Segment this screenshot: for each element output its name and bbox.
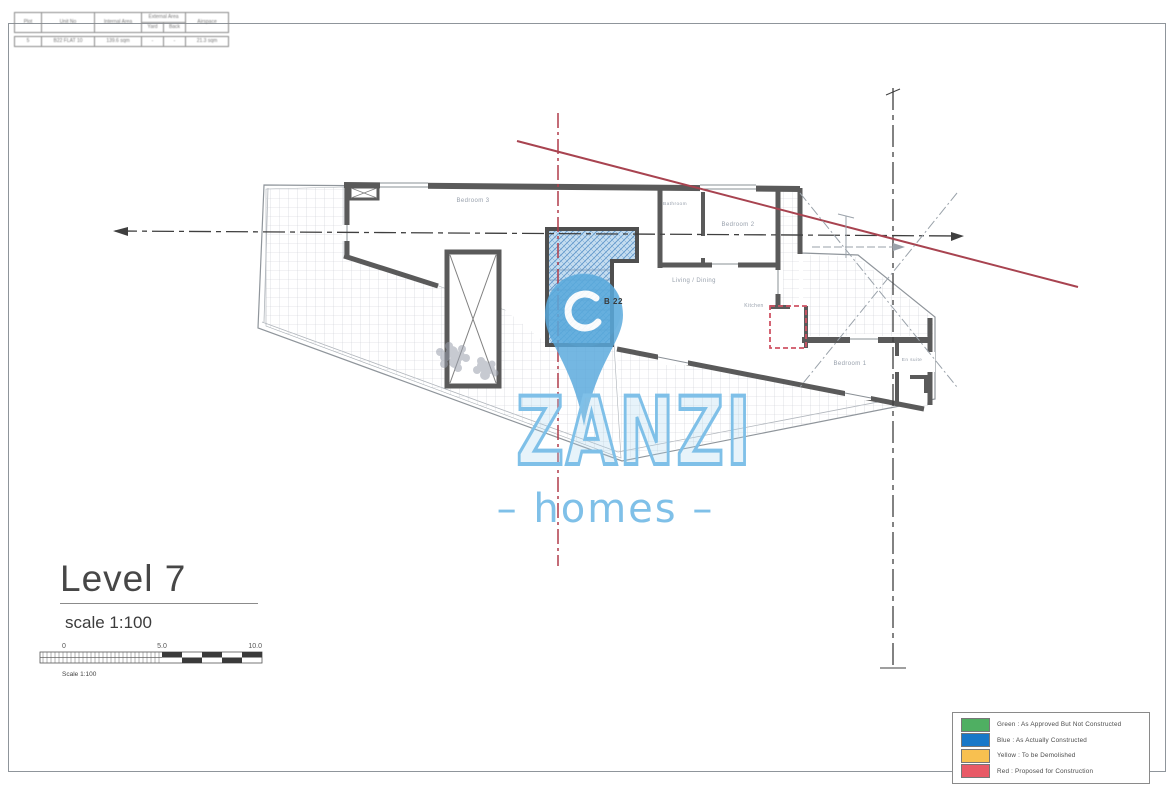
title-block-header-external-area: External Area xyxy=(142,13,186,23)
room-label-en-suite: En suite xyxy=(890,358,934,363)
scale-tick-0: 0 xyxy=(62,643,66,650)
legend-item: Red : Proposed for Construction xyxy=(961,764,1141,778)
scale-tick-5: 5.0 xyxy=(157,643,167,650)
page-title: Level 7 xyxy=(60,558,186,600)
legend-swatch-blue xyxy=(961,733,990,747)
legend-item: Green : As Approved But Not Constructed xyxy=(961,718,1141,732)
watermark-brand: ZANZI xyxy=(516,386,695,480)
legend-swatch-green xyxy=(961,718,990,732)
title-block-header-unit-no: Unit No xyxy=(42,13,95,33)
legend-item: Yellow : To be Demolished xyxy=(961,749,1141,763)
legend-label: Yellow : To be Demolished xyxy=(997,752,1076,759)
title-block-header-back: Back xyxy=(164,23,186,33)
legend-item: Blue : As Actually Constructed xyxy=(961,733,1141,747)
title-block-value-back: - xyxy=(164,37,186,47)
title-underline xyxy=(60,603,258,604)
title-block-value-internal-area: 139.6 sqm xyxy=(95,37,142,47)
title-block-header-internal-area: Internal Area xyxy=(95,13,142,33)
room-label-bathroom: Bathroom xyxy=(652,202,698,207)
legend-label: Green : As Approved But Not Constructed xyxy=(997,721,1121,728)
title-block-header-airspace: Airspace xyxy=(186,13,229,33)
title-block-value-yard: - xyxy=(142,37,164,47)
room-label-bedroom-3: Bedroom 3 xyxy=(438,198,508,204)
title-block-header-yard: Yard xyxy=(142,23,164,33)
title-block-value-unit-no: B22 FLAT 10 xyxy=(42,37,95,47)
title-block-value-airspace: 21.3 sqm xyxy=(186,37,229,47)
service-shaft xyxy=(350,187,378,199)
title-block-header-plot: Plot xyxy=(15,13,42,33)
title-block: Plot Unit No Internal Area External Area… xyxy=(14,12,229,47)
watermark-subtitle: – homes – xyxy=(478,486,733,532)
scale-bar: 0 5.0 10.0 Scale 1:100 xyxy=(38,638,270,682)
block-label: B 22 xyxy=(604,297,623,306)
room-label-kitchen: Kitchen xyxy=(734,303,774,309)
title-block-value-plot: 5 xyxy=(15,37,42,47)
legend-label: Blue : As Actually Constructed xyxy=(997,737,1087,744)
legend-swatch-red xyxy=(961,764,990,778)
scale-label: scale 1:100 xyxy=(65,613,152,633)
scale-tick-10: 10.0 xyxy=(248,643,262,650)
room-label-bedroom-2: Bedroom 2 xyxy=(705,222,771,228)
room-label-bedroom-1: Bedroom 1 xyxy=(815,361,885,367)
drawing-sheet: { "sheet": { "title_block": { "headers":… xyxy=(0,0,1173,800)
scale-bar-caption: Scale 1:100 xyxy=(62,671,97,678)
legend-label: Red : Proposed for Construction xyxy=(997,768,1093,775)
legend-swatch-yellow xyxy=(961,749,990,763)
room-label-living-dining: Living / Dining xyxy=(652,278,736,284)
legend: Green : As Approved But Not Constructed … xyxy=(952,712,1150,784)
